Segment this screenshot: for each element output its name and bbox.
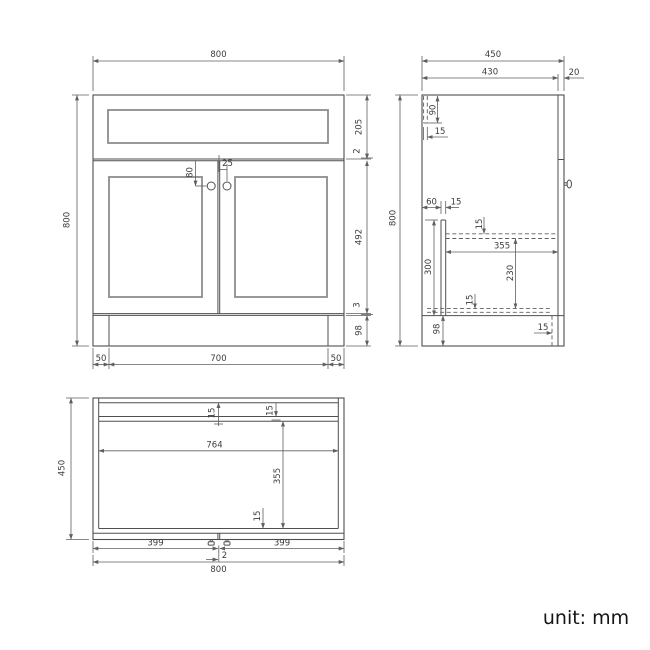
side-dim-support-height: 300 [424,259,434,275]
plan-dim-door-right: 399 [274,539,290,549]
front-outline [93,95,344,346]
vanity-drawing: 800 800 205 2 492 3 98 50 700 50 [0,0,650,650]
door-right-panel [235,177,327,297]
front-dim-gap-bottom: 3 [353,302,363,307]
front-dim-gap-top: 2 [353,148,363,153]
front-view: 800 800 205 2 492 3 98 50 700 50 [63,50,374,369]
side-dim-depth: 450 [485,50,501,60]
knob-plan-right [224,540,230,546]
front-dim-plinth-height: 98 [355,325,365,336]
side-dim-bottom-thickness: 15 [466,295,476,306]
plan-dim-door-left: 399 [147,539,163,549]
front-dim-inset-right: 50 [331,354,342,364]
side-dim-rail-height: 90 [429,105,439,116]
knob-plan-left [208,540,214,546]
front-dim-width: 800 [210,50,226,60]
front-dim-height: 800 [63,212,73,228]
plan-dim-door-gap: 2 [222,551,227,561]
side-dim-door-thickness: 20 [569,68,580,78]
knob-right [223,182,231,190]
side-dim-shelf-to-bottom: 230 [506,265,516,281]
side-dim-body-depth: 430 [482,68,498,78]
front-dim-knob-horizontal: 25 [222,159,233,169]
side-view: 450 430 20 800 90 15 60 15 15 355 [389,50,585,346]
plan-view: 450 15 15 764 355 15 399 399 2 800 [58,398,345,575]
plan-dim-width: 800 [210,565,226,575]
front-dim-door-height: 492 [355,229,365,245]
plan-dim-inner-depth: 355 [273,468,283,484]
plan-dim-inner-width: 764 [206,441,222,451]
knob-left [207,182,215,190]
front-dim-inset-left: 50 [96,354,107,364]
plan-dim-rail-thickness: 15 [266,405,276,416]
plan-dim-depth: 450 [58,460,68,476]
drawer-front-panel [108,110,328,143]
side-dim-rail-thickness: 15 [451,198,462,208]
technical-drawing-page: 800 800 205 2 492 3 98 50 700 50 [0,0,650,650]
front-dim-plinth-width: 700 [210,354,226,364]
front-dim-knob-vertical: 80 [186,167,196,178]
side-dim-shelf-depth: 355 [494,242,510,252]
side-dim-plinth-height: 98 [433,324,443,335]
side-dim-rail-offset: 60 [426,198,437,208]
side-dim-plinth-recess: 15 [538,323,549,333]
door-left-panel [109,177,202,297]
plan-dim-front-thickness: 15 [253,511,263,522]
knob-side-head [567,180,571,188]
side-dim-back-thickness: 15 [435,127,446,137]
unit-note: unit: mm [543,607,629,629]
front-dim-drawer-height: 205 [355,119,365,135]
plan-dim-back-thickness: 15 [208,408,218,419]
side-dim-height: 800 [389,210,399,226]
side-dim-shelf-thickness: 15 [475,219,485,230]
